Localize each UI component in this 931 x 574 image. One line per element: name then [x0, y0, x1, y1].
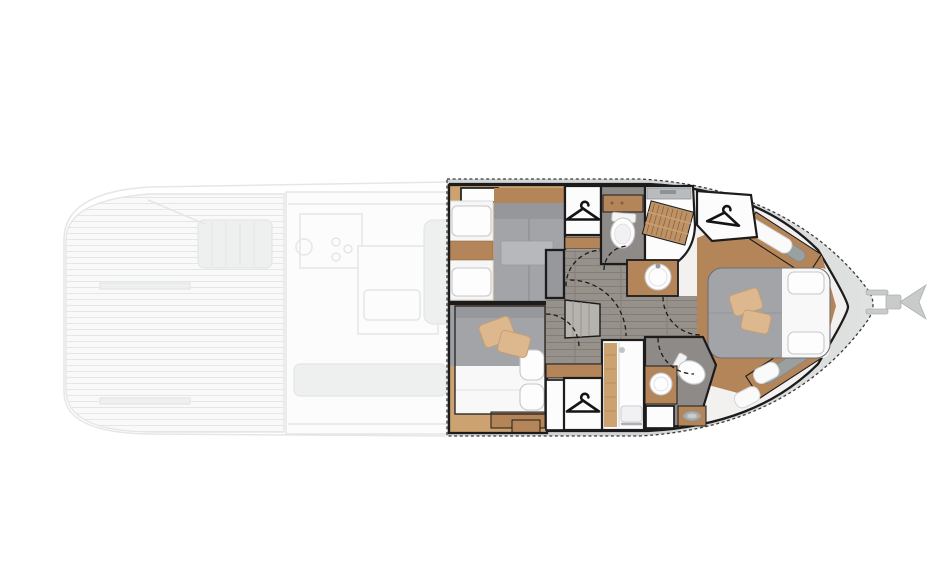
cabin-vip [449, 304, 547, 433]
ghost-fender-roller [198, 220, 272, 268]
ghost-galley [296, 214, 362, 268]
bolster-pillow [520, 384, 544, 410]
wardrobe-master [697, 191, 757, 241]
shower-room-top [642, 186, 695, 264]
companionway-stairs [565, 300, 600, 338]
cabin-master [697, 191, 836, 410]
faucet [656, 264, 661, 269]
bath-cabinet [646, 406, 674, 428]
corridor-cabinet [546, 250, 564, 298]
floor-plan-canvas [0, 0, 931, 574]
wardrobe-bottom [546, 364, 602, 430]
ghost-cockpit-bench [294, 364, 446, 396]
ghost-cleat-strip [100, 398, 190, 404]
anchor-roller-icon [866, 285, 926, 319]
round-sink [650, 373, 672, 395]
guest-toilet-room [601, 186, 645, 264]
headboard [494, 188, 564, 203]
vip-nightstand [512, 420, 540, 433]
pillow [452, 268, 491, 296]
wood-step [678, 406, 706, 426]
washbasin-counter-top [627, 260, 678, 296]
master-island-bed [708, 268, 830, 358]
twin-nightstand [450, 241, 493, 260]
pillow [452, 206, 491, 236]
ghost-main-deck [64, 182, 456, 436]
ghost-cleat-strip [100, 283, 190, 289]
shower-head [619, 347, 625, 353]
shower-room-bottom [602, 340, 644, 430]
wardrobe-top [565, 186, 601, 249]
shower-bench [621, 406, 642, 422]
bolster-pillow [788, 272, 824, 294]
twin-bed-port [450, 201, 493, 300]
vip-double-bed [455, 306, 545, 428]
day-head-room [645, 337, 716, 430]
twin-cabinet [461, 188, 498, 202]
yacht-floor-plan [0, 0, 931, 574]
bolster-pillow [788, 332, 824, 354]
